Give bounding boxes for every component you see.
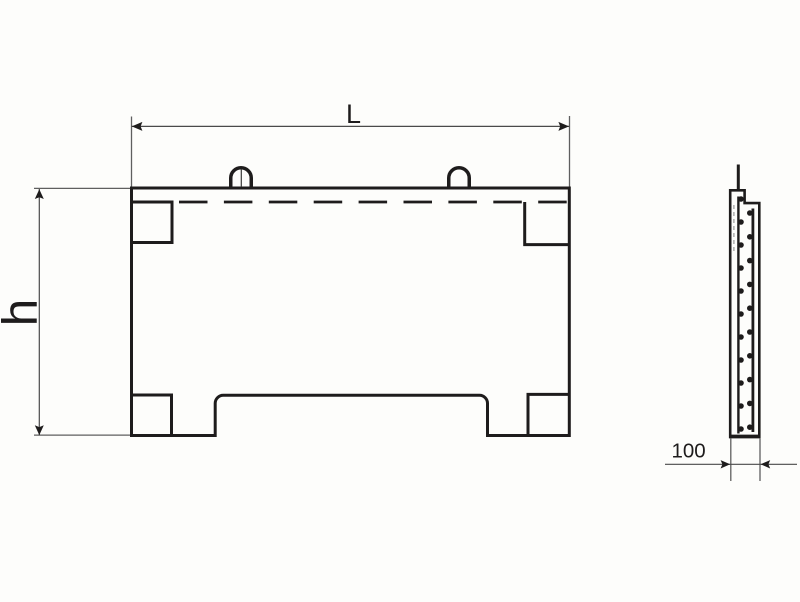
svg-text:h: h	[0, 299, 48, 327]
svg-text:100: 100	[672, 440, 706, 463]
svg-text:L: L	[346, 99, 361, 129]
